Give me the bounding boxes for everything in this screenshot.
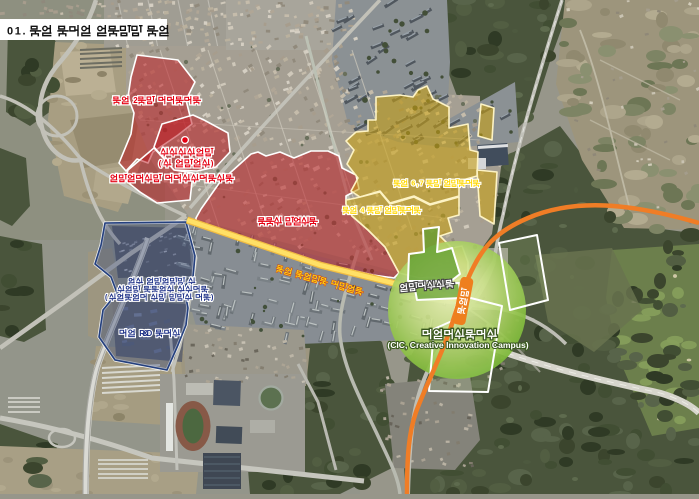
svg-text:R&D: R&D [139, 329, 152, 338]
svg-text:2: 2 [133, 96, 138, 105]
svg-text:6,7: 6,7 [411, 179, 423, 188]
svg-text:): ) [211, 159, 214, 168]
svg-text:(: ( [159, 159, 162, 168]
svg-text:(CIC, Creative Innovation Camp: (CIC, Creative Innovation Campus) [387, 340, 528, 350]
svg-text:01.: 01. [7, 26, 26, 38]
